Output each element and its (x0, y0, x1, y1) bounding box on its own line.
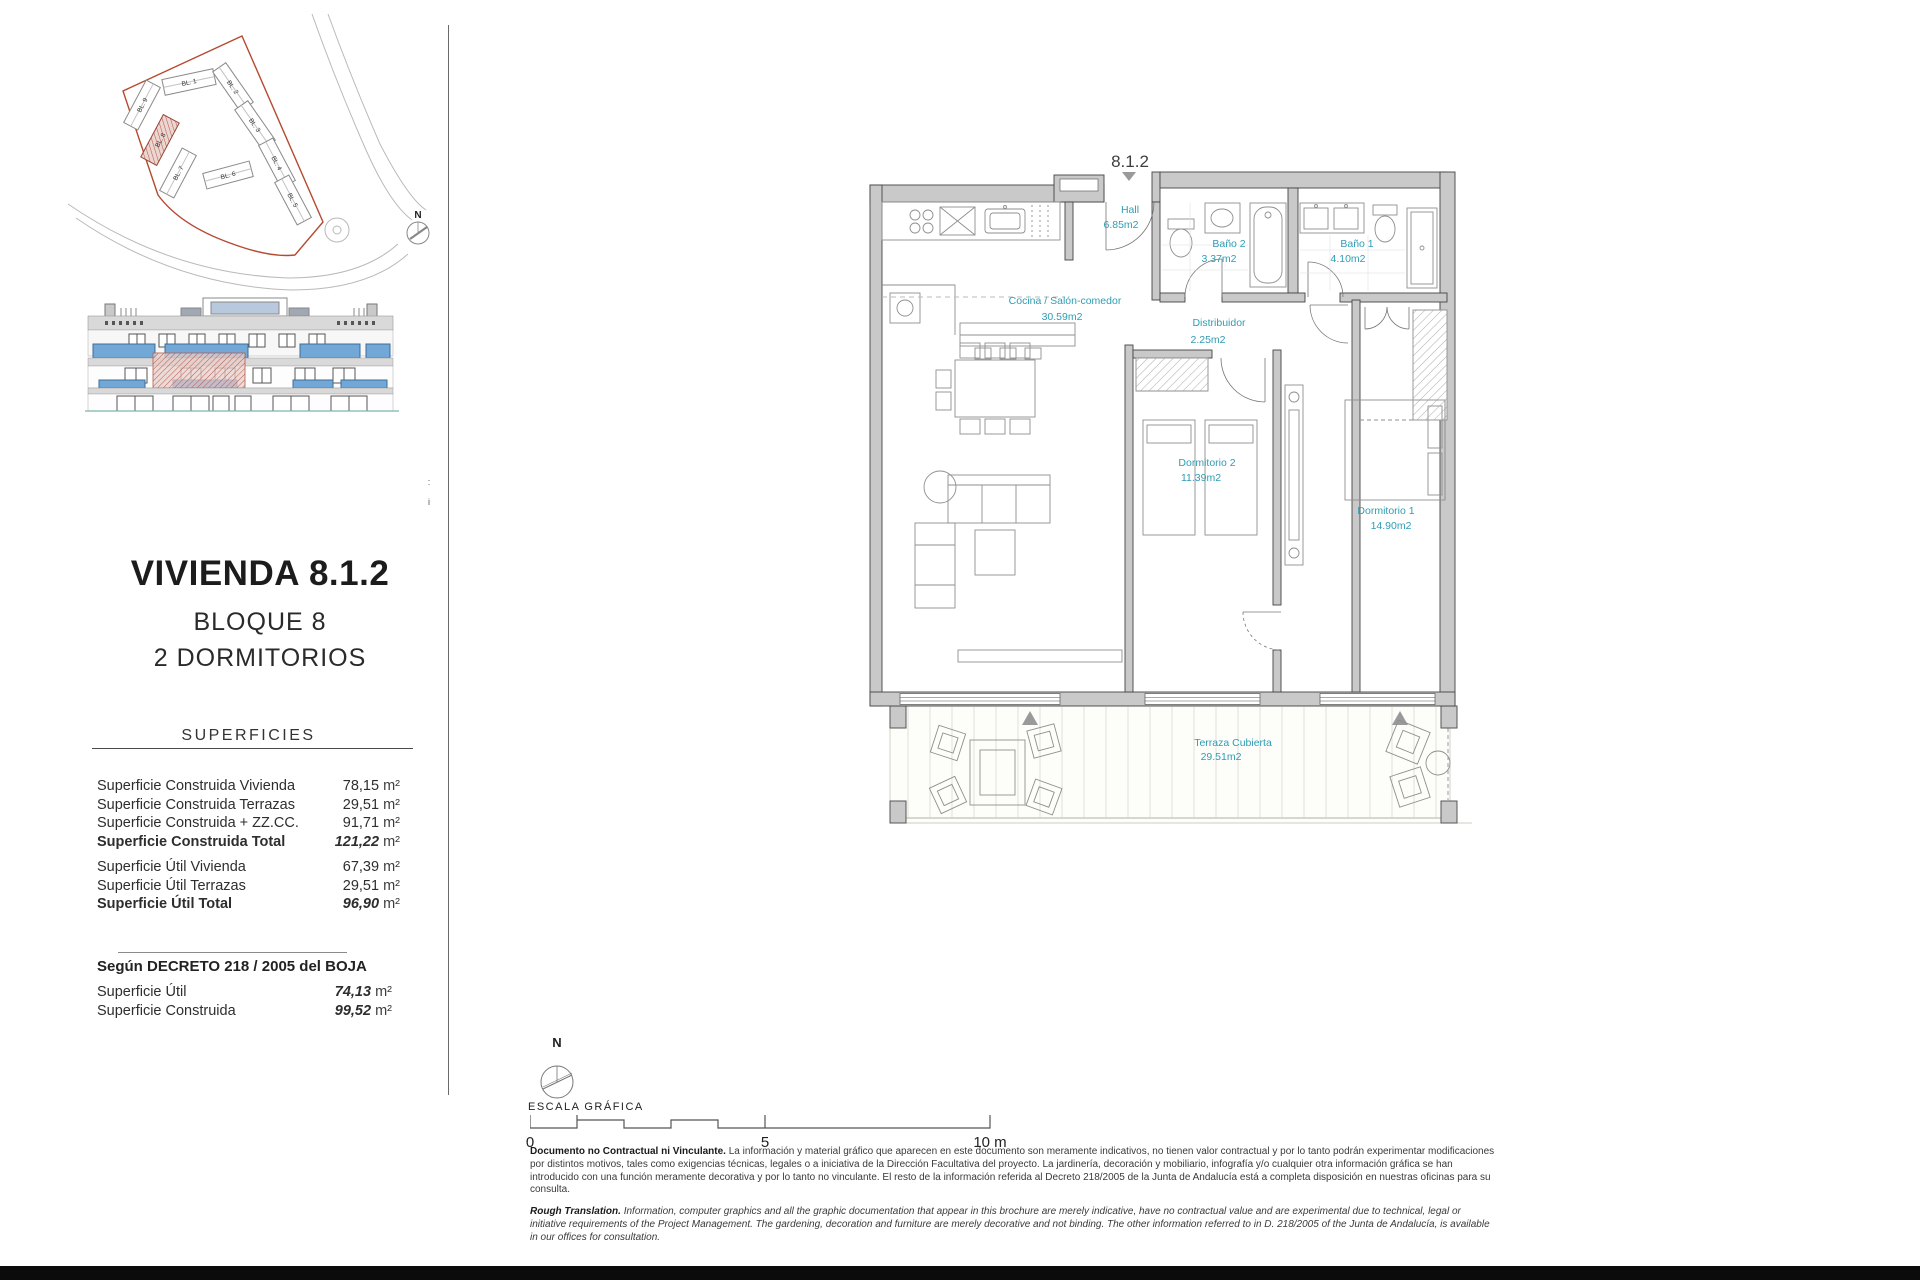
margin-mark: : (428, 477, 431, 487)
disclaimer-english-body: Information, computer graphics and all t… (530, 1206, 1490, 1243)
wardrobe (1413, 310, 1447, 420)
table-row: Superficie Construida Terrazas29,51 m² (97, 796, 400, 815)
armchair (924, 471, 956, 503)
corridor-closet (1285, 385, 1303, 565)
site-buildings: BL. 1 BL. 2 BL. 3 BL. 4 BL. 5 BL. 6 BL. … (124, 63, 312, 225)
panel-divider (448, 25, 449, 1095)
margin-marks: : i (423, 472, 435, 512)
dining-table (936, 343, 1035, 434)
bedrooms-subtitle: 2 DORMITORIOS (60, 644, 460, 673)
site-plan: BL. 1 BL. 2 BL. 3 BL. 4 BL. 5 BL. 6 BL. … (60, 12, 450, 292)
room-area-dormitorio2: 11.39m2 (1181, 472, 1221, 484)
row-label: Superficie Construida Terrazas (97, 796, 295, 815)
table-row: Superficie Útil Terrazas29,51 m² (97, 877, 400, 896)
bottom-page-bar (0, 1266, 1920, 1280)
kitchen-sink (985, 206, 1025, 234)
coffee-table (975, 530, 1015, 575)
table-row-total: Superficie Útil Total96,90 m² (97, 895, 400, 914)
site-block-bl7: BL. 7 (160, 148, 197, 198)
decreto-rule (118, 952, 347, 953)
row-label: Superficie Construida (97, 1002, 236, 1021)
room-label-bano1: Baño 1 (1340, 238, 1373, 250)
room-label-dormitorio1: Dormitorio 1 (1357, 505, 1414, 517)
row-value: 121,22 (335, 834, 379, 850)
row-unit: m² (375, 984, 392, 1000)
row-unit: m² (375, 1003, 392, 1019)
block-subtitle: BLOQUE 8 (60, 608, 460, 637)
disclaimer: Documento no Contractual ni Vinculante. … (530, 1146, 1495, 1254)
table-row: Superficie Construida Vivienda78,15 m² (97, 777, 400, 796)
room-label-hall: Hall (1121, 204, 1139, 216)
disclaimer-spanish-lead: Documento no Contractual ni Vinculante. (530, 1146, 726, 1157)
row-value: 91,71 (343, 815, 379, 831)
site-block-bl8-highlighted: BL. 8 (141, 115, 179, 166)
site-north-label: N (414, 210, 421, 221)
table-row-total: Superficie Construida Total121,22 m² (97, 833, 400, 852)
living-dining (915, 343, 1122, 662)
decreto-heading: Según DECRETO 218 / 2005 del BOJA (97, 958, 417, 975)
unit-callout: 8.1.2 (1111, 152, 1149, 181)
row-unit: m² (383, 896, 400, 912)
bedroom-2 (1136, 358, 1257, 535)
row-value: 67,39 (343, 859, 379, 875)
room-area-hall: 6.85m2 (1103, 219, 1138, 231)
flue-recess (1060, 179, 1098, 191)
north-label: N (544, 1035, 570, 1050)
terrace-windows (900, 694, 1435, 705)
floor-plan: 8.1.2 (860, 145, 1480, 840)
superficies-rule (92, 748, 413, 749)
doors (1106, 202, 1409, 650)
table-row: Superficie Útil74,13 m² (97, 983, 392, 1002)
room-area-bano1: 4.10m2 (1330, 253, 1365, 265)
row-value: 96,90 (343, 896, 379, 912)
row-unit: m² (383, 815, 400, 831)
stove (910, 210, 933, 233)
superficies-heading: SUPERFICIES (97, 727, 400, 745)
page-title: VIVIENDA 8.1.2 (60, 554, 460, 594)
sink (1205, 203, 1240, 233)
kitchen-peninsula (960, 323, 1075, 359)
chaise-lounge (915, 523, 955, 608)
table-row: Superficie Construida99,52 m² (97, 1002, 392, 1021)
kitchen (882, 202, 1075, 359)
building-elevation (85, 296, 405, 436)
margin-mark: i (428, 497, 430, 507)
bathtub (1250, 203, 1286, 287)
site-block-bl6: BL. 6 (203, 161, 254, 189)
disclaimer-english: Rough Translation. Information, computer… (530, 1206, 1495, 1244)
decreto-table: Superficie Útil74,13 m² Superficie Const… (97, 983, 392, 1020)
table-row: Superficie Útil Vivienda67,39 m² (97, 858, 400, 877)
sofa (948, 475, 1050, 523)
terrace (890, 706, 1472, 823)
room-label-dormitorio2: Dormitorio 2 (1178, 457, 1235, 469)
room-area-terraza: 29.51m2 (1201, 751, 1242, 763)
row-label: Superficie Construida + ZZ.CC. (97, 814, 299, 833)
row-value: 74,13 (335, 984, 371, 1000)
superficies-table: Superficie Construida Vivienda78,15 m² S… (97, 777, 400, 914)
scale-bar (530, 1112, 995, 1134)
room-label-distribuidor: Distribuidor (1192, 317, 1246, 329)
toilet (1373, 205, 1397, 242)
washing-machine (890, 293, 920, 323)
room-area-dormitorio1: 14.90m2 (1371, 520, 1412, 532)
cabinets (1032, 205, 1048, 237)
row-unit: m² (383, 778, 400, 794)
row-value: 29,51 (343, 797, 379, 813)
disclaimer-spanish: Documento no Contractual ni Vinculante. … (530, 1146, 1495, 1197)
room-area-bano2: 3.37m2 (1201, 253, 1236, 265)
callout-arrow-icon (1122, 172, 1136, 181)
row-value: 99,52 (335, 1003, 371, 1019)
row-value: 78,15 (343, 778, 379, 794)
row-unit: m² (383, 878, 400, 894)
prep-area (940, 207, 975, 235)
tv-console (958, 650, 1122, 662)
north-compass-icon (538, 1062, 578, 1102)
row-label: Superficie Útil Vivienda (97, 858, 246, 877)
kitchen-counter (882, 202, 1060, 240)
elevation-unit-highlight (153, 353, 245, 388)
room-label-cocina: Cocina / Salón-comedor (1009, 295, 1122, 307)
row-unit: m² (383, 797, 400, 813)
row-label: Superficie Construida Vivienda (97, 777, 295, 796)
disclaimer-english-lead: Rough Translation. (530, 1206, 621, 1217)
wardrobe (1136, 358, 1208, 391)
row-label: Superficie Útil (97, 983, 186, 1002)
row-label: Superficie Construida Total (97, 833, 285, 852)
site-block-bl1: BL. 1 (162, 69, 216, 95)
row-value: 29,51 (343, 878, 379, 894)
room-label-bano2: Baño 2 (1212, 238, 1245, 250)
room-area-distribuidor: 2.25m2 (1190, 334, 1225, 346)
elevation-facade (88, 316, 393, 411)
room-label-terraza: Terraza Cubierta (1194, 737, 1272, 749)
site-north-compass: N (407, 210, 429, 244)
row-unit: m² (383, 834, 400, 850)
table-row: Superficie Construida + ZZ.CC.91,71 m² (97, 814, 400, 833)
row-unit: m² (383, 859, 400, 875)
room-area-cocina: 30.59m2 (1042, 311, 1083, 323)
walls (870, 172, 1455, 706)
shower (1407, 208, 1437, 288)
unit-callout-label: 8.1.2 (1111, 152, 1149, 171)
utility-nook (882, 285, 955, 335)
row-label: Superficie Útil Total (97, 895, 232, 914)
double-sink (1300, 203, 1364, 233)
row-label: Superficie Útil Terrazas (97, 877, 246, 896)
